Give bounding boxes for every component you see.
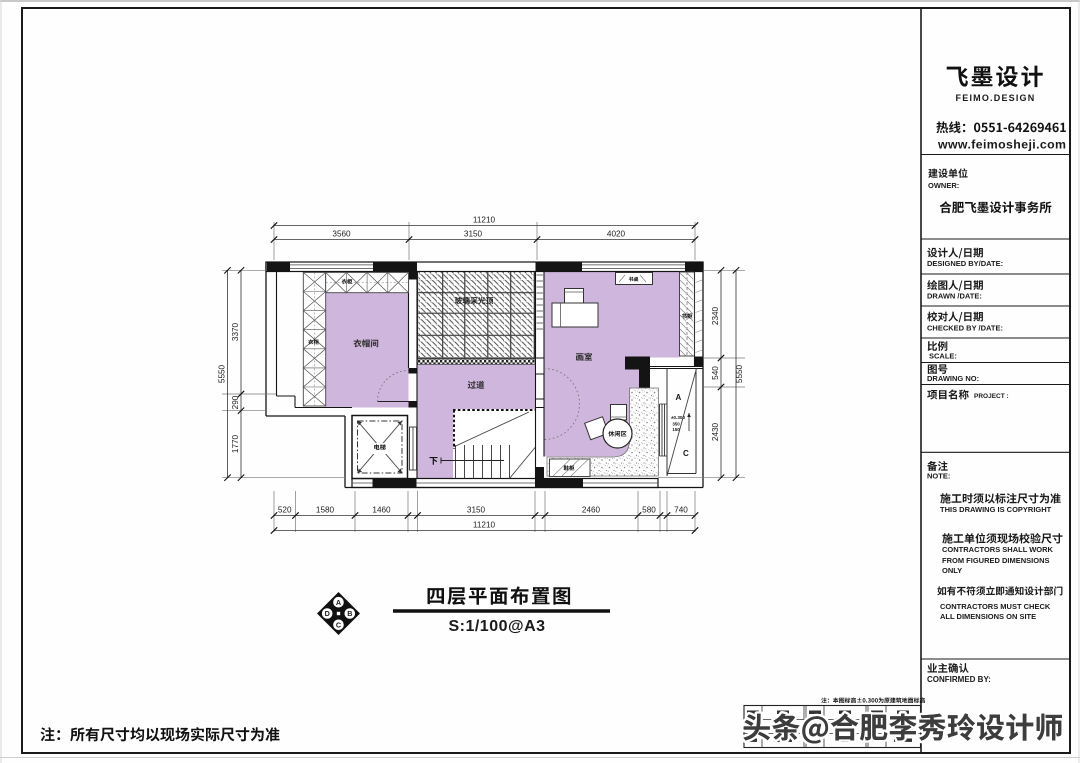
svg-text:3150: 3150 [467, 506, 486, 515]
svg-text:CONTRACTORS MUST CHECK: CONTRACTORS MUST CHECK [940, 602, 1051, 611]
svg-text:11210: 11210 [473, 521, 496, 530]
svg-text:B: B [347, 609, 352, 618]
svg-text:THIS DRAWING IS COPYRIGHT: THIS DRAWING IS COPYRIGHT [940, 505, 1052, 514]
svg-text:D: D [325, 609, 330, 618]
svg-text:150: 150 [672, 427, 680, 432]
svg-text:www.feimosheji.com: www.feimosheji.com [937, 138, 1066, 152]
svg-text:DRAWING NO:: DRAWING NO: [927, 374, 979, 383]
svg-text:2460: 2460 [582, 506, 601, 515]
svg-text:ONLY: ONLY [942, 566, 962, 575]
svg-text:3150: 3150 [464, 230, 483, 239]
svg-text:520: 520 [278, 506, 292, 515]
svg-text:580: 580 [642, 506, 656, 515]
svg-text:±0.300: ±0.300 [671, 415, 685, 420]
svg-text:A: A [336, 598, 341, 607]
svg-text:NOTE:: NOTE: [927, 472, 950, 481]
svg-text:540: 540 [711, 366, 720, 380]
svg-text:4020: 4020 [607, 230, 626, 239]
svg-text:3560: 3560 [332, 230, 351, 239]
svg-text:SCALE:: SCALE: [929, 352, 957, 361]
svg-text:1580: 1580 [316, 506, 335, 515]
svg-text:2430: 2430 [711, 422, 720, 441]
svg-text:PROJECT :: PROJECT : [974, 393, 1009, 400]
svg-text:CONTRACTORS SHALL WORK: CONTRACTORS SHALL WORK [942, 545, 1054, 554]
svg-text:FEIMO.DESIGN: FEIMO.DESIGN [956, 93, 1036, 103]
svg-text:C: C [683, 449, 689, 458]
svg-text:290: 290 [231, 395, 240, 409]
svg-text:11210: 11210 [473, 216, 496, 225]
svg-text:740: 740 [674, 506, 688, 515]
svg-text:C: C [336, 620, 341, 629]
svg-text:DESIGNED BY/DATE:: DESIGNED BY/DATE: [927, 259, 1003, 268]
svg-text:FROM FIGURED DIMENSIONS: FROM FIGURED DIMENSIONS [942, 556, 1050, 565]
svg-text:3370: 3370 [231, 322, 240, 341]
svg-text:350: 350 [672, 422, 680, 427]
svg-text:5550: 5550 [218, 364, 227, 383]
svg-text:OWNER:: OWNER: [928, 181, 959, 190]
svg-text:DRAWN /DATE:: DRAWN /DATE: [927, 292, 982, 301]
svg-text:1460: 1460 [372, 506, 391, 515]
svg-text:CONFIRMED BY:: CONFIRMED BY: [927, 675, 991, 684]
svg-text:A: A [676, 393, 682, 402]
svg-text:1770: 1770 [231, 434, 240, 453]
svg-text:2340: 2340 [711, 306, 720, 325]
svg-text:S:1/100@A3: S:1/100@A3 [448, 618, 545, 635]
svg-text:ALL DIMENSIONS ON SITE: ALL DIMENSIONS ON SITE [940, 612, 1036, 621]
svg-text:5550: 5550 [735, 364, 744, 383]
svg-text:CHECKED BY /DATE:: CHECKED BY /DATE: [927, 324, 1003, 333]
